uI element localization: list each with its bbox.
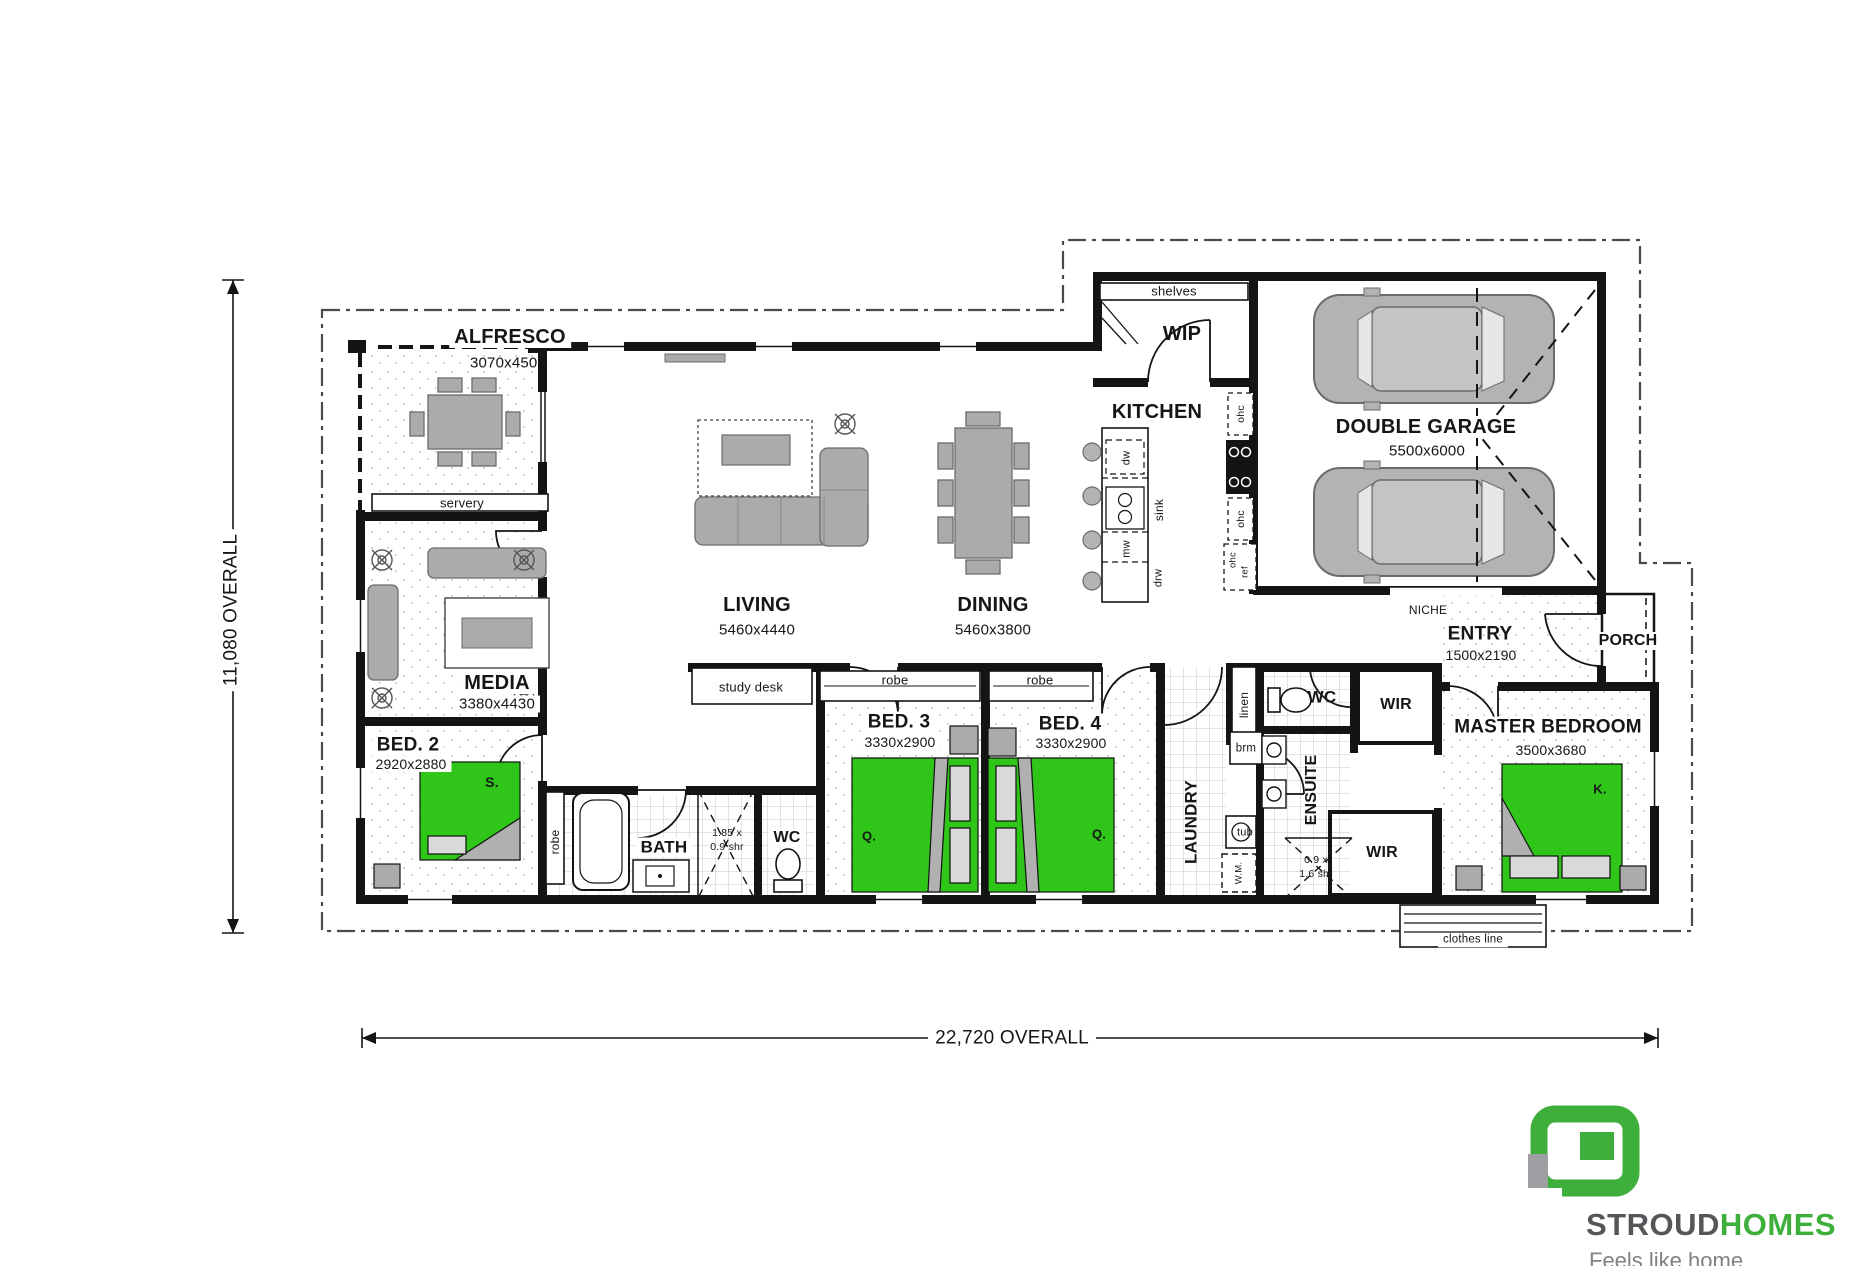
room-label-ensuite: ENSUITE — [1304, 755, 1320, 826]
ohc-label-1: ohc — [1236, 405, 1247, 423]
room-label-alfresco: ALFRESCO — [449, 326, 571, 348]
floor-plan-page: ALFRESCO 3070x4500 servery shelves WIP K… — [0, 0, 1850, 1266]
room-label-laundry: LAUNDRY — [1183, 780, 1200, 864]
dishwasher-label: dw — [1122, 451, 1133, 465]
room-label-garage: DOUBLE GARAGE — [1331, 416, 1521, 438]
linen-label: linen — [1238, 692, 1250, 718]
brand-name-primary: STROUD — [1586, 1207, 1720, 1242]
room-label-wip: WIP — [1163, 324, 1201, 344]
washing-machine-label: W.M. — [1234, 862, 1244, 884]
niche-label: NICHE — [1409, 604, 1447, 616]
room-label-kitchen: KITCHEN — [1112, 402, 1202, 422]
room-label-master: MASTER BEDROOM — [1449, 717, 1647, 738]
room-label-wir-bottom: WIR — [1366, 845, 1398, 861]
room-size-bed3: 3330x2900 — [859, 734, 940, 750]
room-label-porch: PORCH — [1594, 632, 1663, 650]
clothes-line-label: clothes line — [1438, 933, 1508, 947]
room-label-dining: DINING — [957, 595, 1028, 615]
overall-width-dimension: 22,720 OVERALL — [930, 1028, 1094, 1049]
robe-label-bed4: robe — [1027, 674, 1054, 687]
room-label-bed4: BED. 4 — [1034, 714, 1106, 735]
sink-label: sink — [1153, 499, 1165, 521]
microwave-label: mw — [1122, 540, 1133, 558]
shelves-label: shelves — [1151, 285, 1196, 298]
room-size-bed4: 3330x2900 — [1030, 735, 1111, 751]
room-label-wc-bottom: WC — [768, 829, 805, 847]
overall-height-dimension: 11,080 OVERALL — [221, 529, 242, 691]
room-size-living: 5460x4440 — [719, 623, 795, 638]
room-size-entry: 1500x2190 — [1445, 648, 1516, 662]
broom-label: brm — [1236, 743, 1256, 755]
bed4-bed-tag: Q. — [1092, 828, 1106, 841]
study-desk-label: study desk — [719, 681, 783, 694]
ohc-label-2: ohc — [1236, 510, 1247, 528]
room-size-master: 3500x3680 — [1510, 742, 1591, 758]
ohc-label-3: ohc — [1228, 552, 1238, 568]
bed2-bed-tag: S. — [485, 775, 499, 789]
room-label-media: MEDIA — [459, 672, 534, 694]
ensuite-shower-size-line1: 0.9 x — [1304, 855, 1328, 866]
brand-name-secondary: HOMES — [1720, 1207, 1836, 1242]
master-bed-tag: K. — [1593, 783, 1606, 796]
stroud-homes-logo: STROUDHOMES Feels like home — [1520, 1104, 1840, 1266]
room-label-bed3: BED. 3 — [863, 712, 935, 733]
room-size-garage: 5500x6000 — [1384, 443, 1470, 460]
stroud-homes-logo-mark — [1528, 1104, 1840, 1203]
drawers-label: drw — [1154, 569, 1165, 587]
bath-shower-size-line1: 1.85 x — [712, 828, 742, 839]
room-label-entry: ENTRY — [1448, 625, 1513, 644]
room-label-bath: BATH — [636, 838, 693, 857]
ensuite-shower-size-line2: 1.6 shr — [1299, 869, 1333, 880]
room-size-dining: 5460x3800 — [955, 623, 1031, 638]
room-label-wc-top: WC — [1308, 689, 1337, 706]
floor-plan-drawing — [0, 0, 1850, 1266]
tub-label: tub — [1237, 828, 1253, 839]
room-size-alfresco: 3070x4500 — [470, 356, 546, 371]
fridge-label: ref — [1240, 566, 1250, 578]
room-size-media: 3380x4430 — [454, 696, 540, 713]
robe-label-bed2: robe — [549, 830, 561, 855]
servery-label: servery — [440, 497, 484, 510]
room-label-bed2: BED. 2 — [372, 735, 444, 756]
room-label-living: LIVING — [723, 595, 791, 615]
room-label-wir-top: WIR — [1380, 697, 1412, 713]
bed3-bed-tag: Q. — [862, 830, 876, 843]
robe-label-bed3: robe — [882, 674, 909, 687]
brand-tagline: Feels like home — [1589, 1248, 1840, 1266]
room-size-bed2: 2920x2880 — [370, 756, 451, 772]
bath-shower-size-line2: 0.9 shr — [710, 842, 744, 853]
brand-name: STROUDHOMES — [1586, 1207, 1840, 1243]
